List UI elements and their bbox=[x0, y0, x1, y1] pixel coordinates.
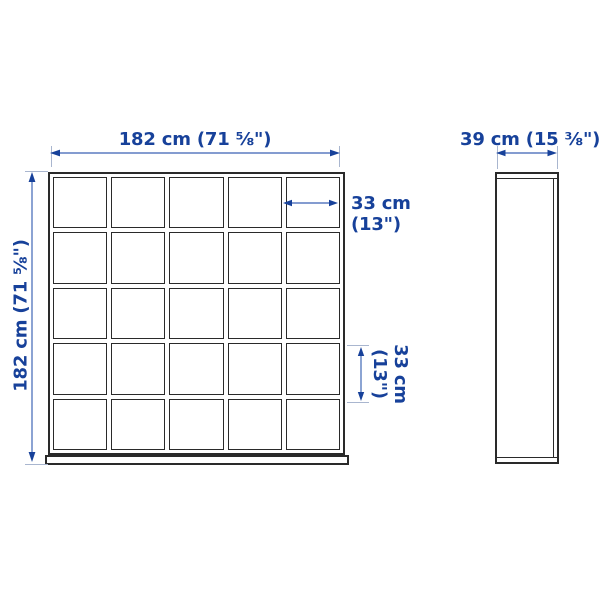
side-view bbox=[495, 172, 559, 464]
cell-height-dimension-label: 33 cm (13") bbox=[369, 339, 411, 409]
shelf-cell bbox=[53, 177, 107, 228]
front-height-dimension-label: 182 cm (71 ⅝") bbox=[11, 172, 32, 460]
cell-height-value: 33 cm bbox=[390, 339, 411, 409]
shelf-cell bbox=[169, 343, 223, 394]
cell-height-dimension-arrow-icon bbox=[356, 347, 366, 401]
cell-width-dimension-label: 33 cm (13") bbox=[351, 193, 411, 235]
side-bottom-panel-edge bbox=[497, 457, 557, 458]
extension-line bbox=[347, 402, 369, 403]
side-top-panel-edge bbox=[497, 178, 557, 179]
shelf-cell bbox=[169, 232, 223, 283]
shelf-cell bbox=[111, 399, 165, 450]
shelf-cell bbox=[169, 177, 223, 228]
front-view-base-plate bbox=[45, 455, 349, 465]
shelf-cell bbox=[228, 177, 282, 228]
dimension-drawing: 182 cm (71 ⅝") 182 cm (71 ⅝") 33 cm (13"… bbox=[0, 0, 600, 600]
shelf-cell bbox=[228, 288, 282, 339]
cell-width-dimension-arrow-icon bbox=[283, 198, 338, 208]
shelf-cell bbox=[53, 343, 107, 394]
side-depth-dimension-label: 39 cm (15 ⅜") bbox=[460, 129, 592, 150]
shelf-cell bbox=[228, 399, 282, 450]
shelf-cell bbox=[228, 343, 282, 394]
extension-line bbox=[25, 464, 48, 465]
shelf-cell bbox=[286, 232, 340, 283]
side-back-edge bbox=[553, 179, 554, 457]
shelf-cell bbox=[111, 232, 165, 283]
extension-line bbox=[347, 345, 369, 346]
shelf-cell bbox=[53, 399, 107, 450]
shelf-cell bbox=[53, 232, 107, 283]
cell-height-inches: (13") bbox=[369, 339, 390, 409]
shelf-cell bbox=[169, 288, 223, 339]
shelf-cell bbox=[111, 288, 165, 339]
shelf-cell bbox=[286, 343, 340, 394]
shelf-cell bbox=[286, 399, 340, 450]
cell-width-value: 33 cm bbox=[351, 193, 411, 214]
front-view bbox=[48, 172, 345, 455]
cell-width-inches: (13") bbox=[351, 214, 411, 235]
shelf-cell bbox=[111, 343, 165, 394]
shelf-cell bbox=[53, 288, 107, 339]
front-width-dimension-label: 182 cm (71 ⅝") bbox=[51, 129, 339, 150]
shelf-cell bbox=[169, 399, 223, 450]
shelf-grid bbox=[53, 177, 340, 450]
shelf-cell bbox=[111, 177, 165, 228]
shelf-cell bbox=[228, 232, 282, 283]
shelf-cell bbox=[286, 288, 340, 339]
